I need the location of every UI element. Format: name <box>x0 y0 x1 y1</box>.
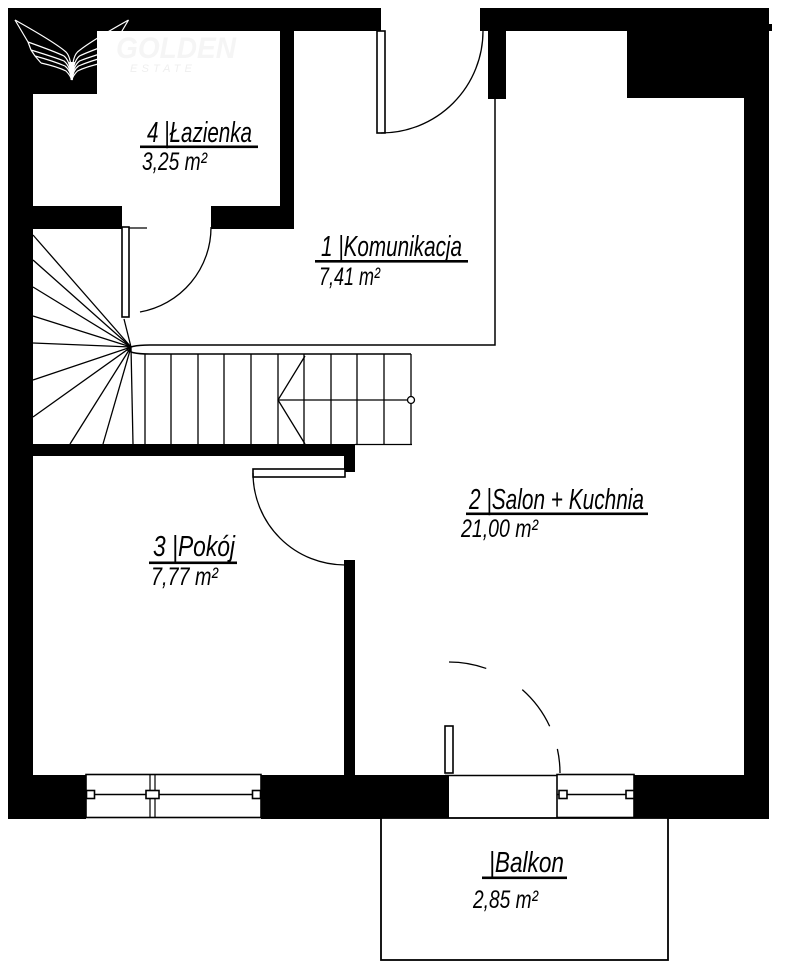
svg-text:GOLDEN: GOLDEN <box>116 32 237 65</box>
svg-text:2,85 m²: 2,85 m² <box>472 886 539 914</box>
svg-text:21,00 m²: 21,00 m² <box>460 515 539 543</box>
svg-text:ESTATE: ESTATE <box>130 63 196 75</box>
svg-text:1 |Komunikacja: 1 |Komunikacja <box>321 231 462 263</box>
svg-text:4 |Łazienka: 4 |Łazienka <box>147 117 252 149</box>
svg-text:|Balkon: |Balkon <box>489 847 564 879</box>
svg-text:3 |Pokój: 3 |Pokój <box>153 531 236 563</box>
svg-text:2 |Salon + Kuchnia: 2 |Salon + Kuchnia <box>468 484 644 516</box>
svg-text:3,25 m²: 3,25 m² <box>142 148 208 176</box>
svg-text:7,77 m²: 7,77 m² <box>151 563 219 591</box>
svg-text:7,41 m²: 7,41 m² <box>319 263 381 291</box>
